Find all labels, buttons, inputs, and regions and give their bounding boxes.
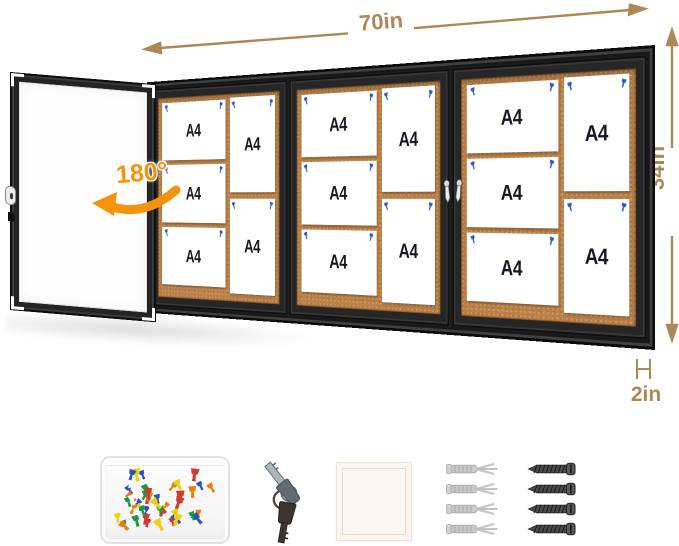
wall-anchor-icon <box>446 462 498 476</box>
screw-icon <box>526 522 578 536</box>
bulletin-board-cabinet: A4A4A4A4A4A4A4A4A4A4A4A4A4A4A4 <box>147 45 655 350</box>
paper-label: A4 <box>501 180 522 205</box>
a4-paper: A4 <box>162 99 226 160</box>
push-pin-icon <box>619 202 628 213</box>
paper-label: A4 <box>244 235 260 257</box>
screws-group <box>526 462 578 536</box>
push-pin-icon <box>470 234 477 244</box>
push-pin-icon <box>303 96 309 105</box>
push-pin-icon <box>231 201 237 210</box>
paper-label: A4 <box>399 127 418 151</box>
push-pin-icon <box>547 159 555 169</box>
paper-label: A4 <box>501 104 522 130</box>
pushpin-box <box>100 456 230 544</box>
paper-label: A4 <box>329 250 347 274</box>
push-pin-icon <box>187 486 198 498</box>
push-pin-icon <box>231 101 237 110</box>
paper-label: A4 <box>501 255 522 281</box>
door-lock-tab <box>8 212 14 222</box>
push-pin-icon <box>268 99 274 108</box>
push-pin-icon <box>268 201 274 210</box>
a4-paper: A4 <box>162 227 226 288</box>
push-pin-icon <box>218 101 224 109</box>
a4-paper: A4 <box>382 198 436 304</box>
a4-paper: A4 <box>301 160 376 225</box>
paper-column-left: A4A4A4 <box>301 90 376 296</box>
paper-column-right: A4A4 <box>564 74 629 316</box>
screw-icon <box>526 462 578 476</box>
depth-indicator-icon <box>632 356 656 382</box>
push-pin-icon <box>130 514 143 528</box>
push-pin-icon <box>164 228 169 236</box>
cork-panel: A4A4A4A4A4 <box>296 80 440 314</box>
door-lock-icon <box>5 186 16 206</box>
paper-column-left: A4A4A4 <box>467 79 558 305</box>
push-pin-icon <box>368 232 375 241</box>
push-pin-icon <box>171 496 186 512</box>
a4-paper: A4 <box>230 198 275 295</box>
push-pin-icon <box>383 202 390 212</box>
display-door-2: A4A4A4A4A4 <box>289 69 449 326</box>
blank-sheet <box>336 462 412 541</box>
push-pin-icon <box>188 468 201 482</box>
a4-paper: A4 <box>564 74 629 192</box>
pushpin-cluster <box>109 469 221 535</box>
push-pin-icon <box>368 92 375 101</box>
push-pin-icon <box>205 482 218 495</box>
door-corner-highlight <box>11 296 24 310</box>
paper-label: A4 <box>329 182 347 205</box>
paper-label: A4 <box>585 120 608 147</box>
push-pin-icon <box>218 165 224 174</box>
paper-label: A4 <box>186 246 201 268</box>
paper-column-right: A4A4 <box>382 85 436 304</box>
lock-keys-icon <box>442 178 466 214</box>
paper-column-right: A4A4 <box>230 95 275 295</box>
paper-label: A4 <box>399 239 418 263</box>
push-pin-icon <box>547 236 555 246</box>
door-corner-highlight <box>142 307 155 321</box>
wall-anchors-group <box>446 462 498 536</box>
screw-icon <box>526 502 578 516</box>
screw-icon <box>526 482 578 496</box>
a4-paper: A4 <box>382 85 436 192</box>
push-pin-icon <box>164 104 169 113</box>
push-pin-icon <box>427 89 434 98</box>
push-pin-icon <box>566 81 574 92</box>
push-pin-icon <box>383 92 390 102</box>
swing-arrow-icon <box>90 182 182 222</box>
a4-paper: A4 <box>301 90 376 157</box>
cork-panel: A4A4A4A4A4 <box>461 68 636 327</box>
push-pin-icon <box>303 231 309 240</box>
wall-anchor-icon <box>446 522 498 536</box>
a4-paper: A4 <box>230 95 275 192</box>
product-image-canvas: 70in 34in 2in A4A4A4A4A4A4A4A4A4A4A4A4A4… <box>0 0 679 546</box>
a4-paper: A4 <box>467 232 558 305</box>
depth-dimension-label: 2in <box>622 383 670 407</box>
doors: A4A4A4A4A4A4A4A4A4A4A4A4A4A4A4 <box>147 45 655 350</box>
a4-paper: A4 <box>467 79 558 153</box>
push-pin-icon <box>368 162 375 171</box>
push-pin-icon <box>566 202 574 213</box>
wall-anchor-icon <box>446 502 498 516</box>
paper-label: A4 <box>585 243 608 270</box>
display-door-3: A4A4A4A4A4 <box>453 56 647 340</box>
push-pin-icon <box>303 163 309 172</box>
keys-icon <box>255 452 327 546</box>
paper-label: A4 <box>186 119 201 141</box>
door-corner-highlight <box>11 73 24 87</box>
a4-paper: A4 <box>467 157 558 229</box>
push-pin-icon <box>470 86 477 96</box>
a4-paper: A4 <box>564 199 629 317</box>
width-dimension-label: 70in <box>347 6 415 37</box>
push-pin-icon <box>547 82 555 92</box>
push-pin-icon <box>152 517 168 534</box>
push-pin-icon <box>218 229 224 238</box>
a4-paper: A4 <box>301 229 376 296</box>
paper-label: A4 <box>186 183 201 204</box>
paper-label: A4 <box>329 112 347 136</box>
push-pin-icon <box>619 78 628 88</box>
door-corner-highlight <box>142 84 155 98</box>
push-pin-icon <box>427 202 434 212</box>
paper-label: A4 <box>244 133 260 155</box>
push-pin-icon <box>470 160 477 170</box>
wall-anchor-icon <box>446 482 498 496</box>
